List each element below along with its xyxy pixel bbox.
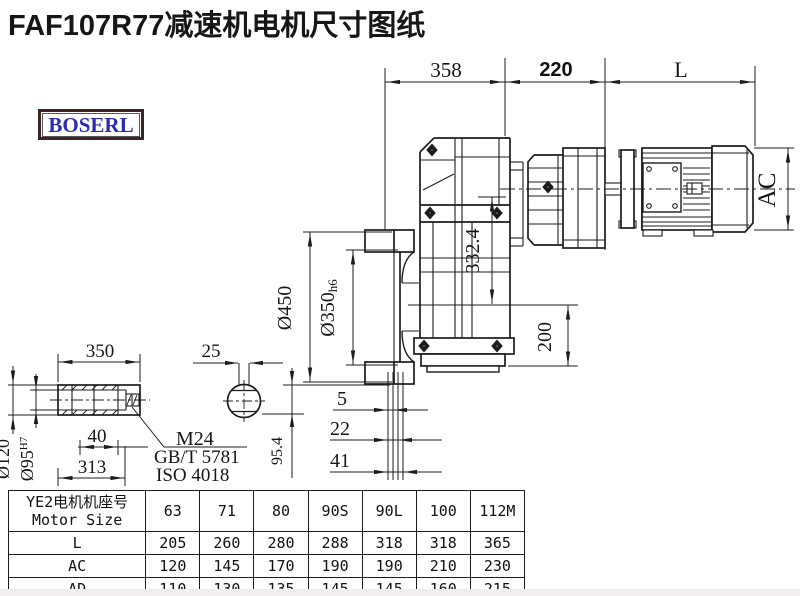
dim-220: 220 bbox=[539, 59, 572, 81]
brand-logo: BOSERL bbox=[38, 109, 144, 140]
motor-body bbox=[500, 146, 795, 236]
row-label-AC: AC bbox=[9, 555, 146, 578]
technical-drawing: 358 220 L AC Ø450 Ø350h6 332.4 200 5 22 … bbox=[0, 0, 800, 492]
dim-313: 313 bbox=[78, 457, 107, 478]
table-cell: 365 bbox=[470, 532, 524, 555]
dim-358: 358 bbox=[430, 58, 462, 82]
row-label-L: L bbox=[9, 532, 146, 555]
bottom-strip bbox=[0, 589, 800, 596]
table-column-100: 100 bbox=[416, 491, 470, 532]
dim-332: 332.4 bbox=[462, 229, 484, 274]
table-cell: 205 bbox=[146, 532, 200, 555]
table-header-cn: YE2电机机座号 bbox=[9, 493, 145, 511]
dim-200: 200 bbox=[534, 322, 556, 352]
table-cell: 120 bbox=[146, 555, 200, 578]
table-cell: 260 bbox=[200, 532, 254, 555]
dim-bore: Ø95H7 bbox=[17, 436, 37, 481]
table-cell: 210 bbox=[416, 555, 470, 578]
dim-25: 25 bbox=[202, 341, 221, 362]
bolt-standard-iso: ISO 4018 bbox=[156, 465, 229, 486]
table-cell: 318 bbox=[362, 532, 416, 555]
table-cell: 230 bbox=[470, 555, 524, 578]
dim-spigot: Ø350h6 bbox=[317, 279, 340, 337]
dim-AC: AC bbox=[754, 173, 781, 208]
table-column-90L: 90L bbox=[362, 491, 416, 532]
dim-22: 22 bbox=[330, 418, 350, 440]
input-adapter bbox=[528, 148, 621, 248]
dim-350: 350 bbox=[86, 341, 115, 362]
table-header-motor-size: YE2电机机座号Motor Size bbox=[9, 491, 146, 532]
table-row-L: L205260280288318318365 bbox=[9, 532, 525, 555]
table-column-90S: 90S bbox=[308, 491, 362, 532]
output-flange bbox=[365, 230, 419, 384]
table-cell: 288 bbox=[308, 532, 362, 555]
dim-bore-value: Ø95 bbox=[17, 450, 37, 481]
table-column-112M: 112M bbox=[470, 491, 524, 532]
table-cell: 170 bbox=[254, 555, 308, 578]
table-header-row: YE2电机机座号Motor Size63718090S90L100112M bbox=[9, 491, 525, 532]
dim-L: L bbox=[674, 57, 687, 82]
dim-spigot-fit: h6 bbox=[325, 279, 340, 293]
dim-flange-od: Ø450 bbox=[274, 286, 296, 330]
page-title: FAF107R77减速机电机尺寸图纸 bbox=[8, 2, 425, 44]
dim-spigot-value: Ø350 bbox=[317, 292, 339, 336]
drawing-page: 358 220 L AC Ø450 Ø350h6 332.4 200 5 22 … bbox=[0, 0, 800, 596]
table-cell: 190 bbox=[362, 555, 416, 578]
table-column-71: 71 bbox=[200, 491, 254, 532]
dim-41: 41 bbox=[330, 450, 350, 472]
dim-5: 5 bbox=[337, 388, 347, 410]
dim-40: 40 bbox=[88, 426, 107, 447]
table-cell: 145 bbox=[200, 555, 254, 578]
table-row-AC: AC120145170190190210230 bbox=[9, 555, 525, 578]
table-cell: 280 bbox=[254, 532, 308, 555]
shaft-end-view bbox=[223, 380, 265, 422]
dim-bore-fit: H7 bbox=[18, 436, 30, 450]
table-cell: 190 bbox=[308, 555, 362, 578]
table-cell: 318 bbox=[416, 532, 470, 555]
table-header-en: Motor Size bbox=[9, 511, 145, 529]
table-column-80: 80 bbox=[254, 491, 308, 532]
motor-size-table: YE2电机机座号Motor Size63718090S90L100112ML20… bbox=[8, 490, 525, 596]
dim-95-4: 95.4 bbox=[269, 437, 286, 465]
table-column-63: 63 bbox=[146, 491, 200, 532]
dim-sleeve-od: Ø120 bbox=[0, 439, 13, 479]
brand-logo-text: BOSERL bbox=[42, 113, 139, 137]
